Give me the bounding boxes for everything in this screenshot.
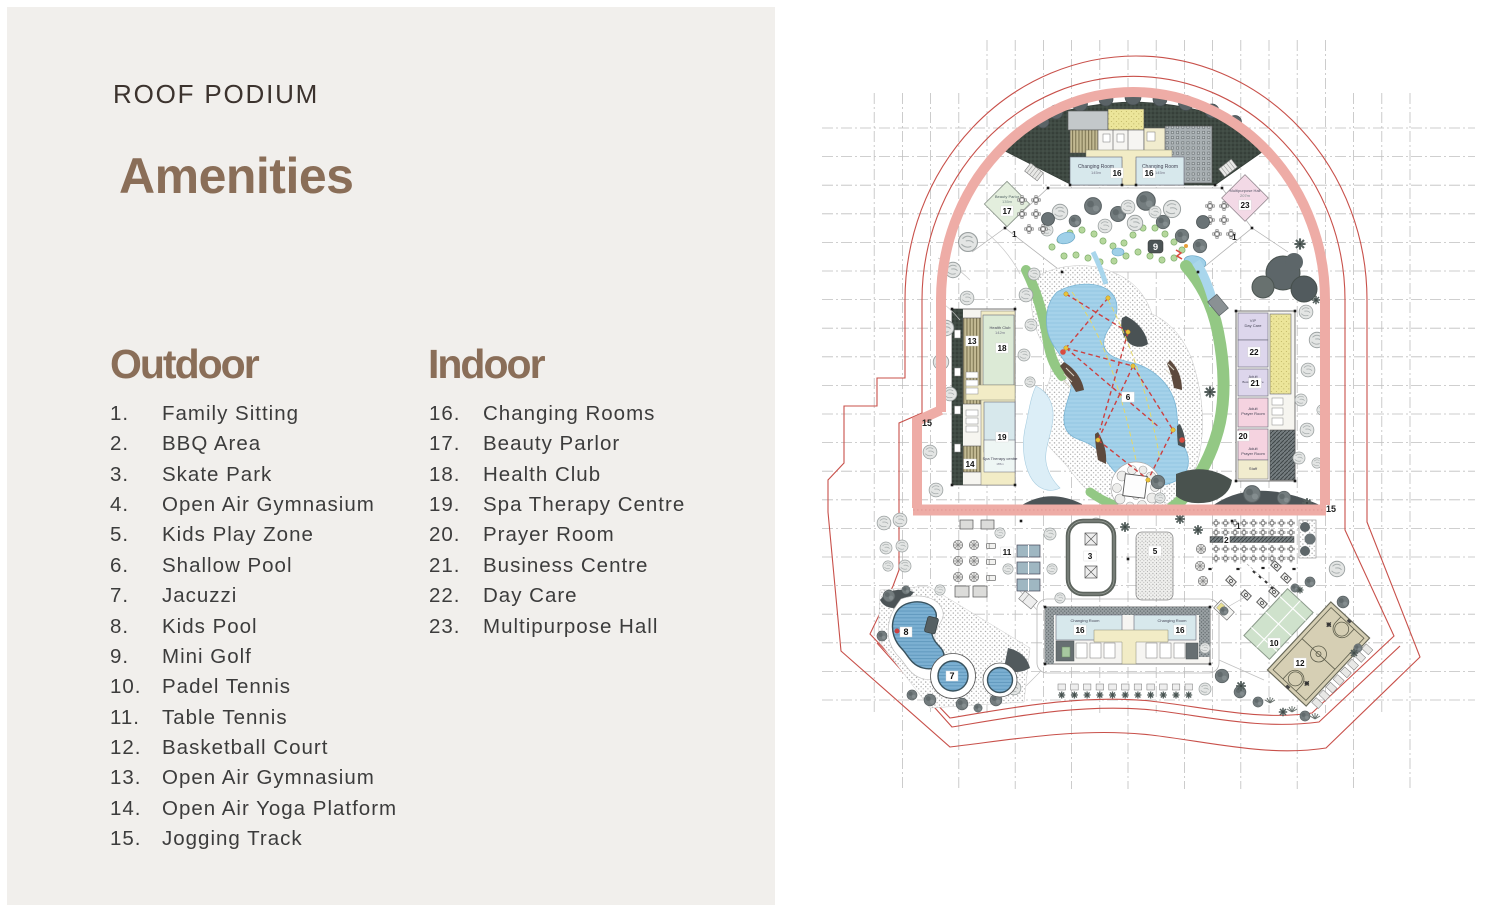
svg-text:16: 16: [1175, 626, 1185, 635]
svg-text:11: 11: [1003, 548, 1012, 557]
svg-text:12: 12: [1295, 659, 1305, 668]
svg-text:Day Care: Day Care: [1245, 323, 1263, 328]
svg-text:145m: 145m: [1091, 170, 1102, 175]
svg-text:142m: 142m: [995, 330, 1006, 335]
svg-text:15: 15: [1326, 504, 1336, 514]
svg-text:5: 5: [1153, 547, 1158, 556]
svg-text:15: 15: [922, 418, 932, 428]
svg-text:1: 1: [1012, 229, 1017, 239]
svg-text:14: 14: [965, 460, 975, 469]
svg-text:Changing Room: Changing Room: [1071, 618, 1101, 623]
svg-text:185m: 185m: [996, 462, 1004, 466]
svg-text:Health Club: Health Club: [990, 325, 1012, 330]
svg-text:Spa Therapy centre: Spa Therapy centre: [982, 456, 1018, 461]
svg-text:Staff: Staff: [1249, 466, 1258, 471]
svg-text:1: 1: [1232, 232, 1237, 242]
svg-text:2: 2: [1224, 535, 1229, 545]
svg-text:Multipurpose Hall: Multipurpose Hall: [1230, 188, 1261, 193]
svg-text:16: 16: [1144, 169, 1154, 178]
svg-text:Adult: Adult: [1248, 406, 1258, 411]
svg-text:Prayer Room: Prayer Room: [1241, 411, 1265, 416]
svg-text:17: 17: [1002, 207, 1012, 216]
svg-text:Adult: Adult: [1248, 446, 1258, 451]
svg-text:9: 9: [1153, 242, 1158, 253]
svg-text:16: 16: [1075, 626, 1085, 635]
svg-text:21: 21: [1250, 379, 1260, 388]
svg-text:19: 19: [997, 433, 1007, 442]
svg-text:3: 3: [1088, 552, 1093, 561]
svg-text:145m: 145m: [1155, 170, 1166, 175]
svg-text:22: 22: [1249, 348, 1259, 357]
svg-text:VIP: VIP: [1250, 318, 1257, 323]
svg-text:1: 1: [1236, 521, 1241, 531]
svg-text:23: 23: [1240, 201, 1250, 210]
svg-text:13: 13: [967, 337, 977, 346]
svg-text:Prayer Room: Prayer Room: [1241, 451, 1265, 456]
svg-text:20: 20: [1238, 432, 1248, 441]
svg-text:135m: 135m: [1002, 199, 1013, 204]
svg-text:16: 16: [1112, 169, 1122, 178]
svg-text:207m: 207m: [1240, 193, 1251, 198]
svg-text:18: 18: [997, 344, 1007, 353]
svg-text:6: 6: [1126, 393, 1131, 402]
svg-text:7: 7: [949, 671, 954, 681]
svg-text:10: 10: [1269, 639, 1279, 648]
svg-text:Changing Room: Changing Room: [1158, 618, 1188, 623]
svg-text:Beauty Parlor: Beauty Parlor: [995, 194, 1020, 199]
svg-text:8: 8: [903, 627, 908, 637]
svg-text:Changing Room: Changing Room: [1078, 164, 1114, 170]
